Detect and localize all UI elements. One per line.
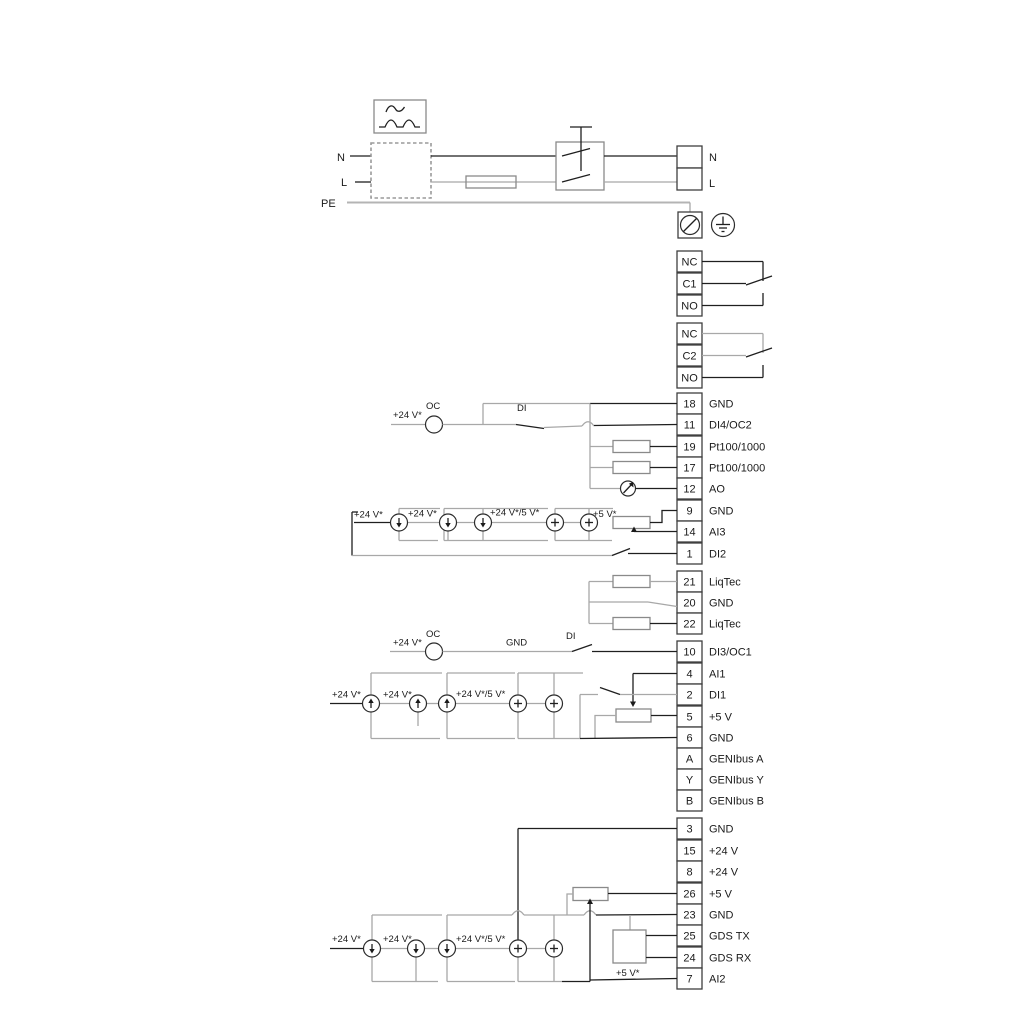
terminal-label: GDS TX xyxy=(709,931,750,943)
current-source-down-icon xyxy=(475,514,492,531)
pt100-ao-circuit xyxy=(590,404,677,497)
relay-1-contact xyxy=(702,262,772,306)
terminal-label: +24 V xyxy=(709,867,739,879)
voltage-source-plus-icon xyxy=(581,514,598,531)
open-collector-icon xyxy=(426,416,443,433)
terminal-label: GND xyxy=(709,910,734,922)
terminal-number: NC xyxy=(682,257,698,269)
current-source-up-icon xyxy=(363,695,380,712)
label-5v: +5 V* xyxy=(616,968,640,979)
terminal-label: GND xyxy=(709,824,734,836)
terminal-label: GENIbus B xyxy=(709,796,764,808)
label-oc: OC xyxy=(426,401,440,412)
terminal-label: AI3 xyxy=(709,527,726,539)
terminal-label: AO xyxy=(709,484,725,496)
wire-pot-left xyxy=(595,716,616,739)
terminal-number: Y xyxy=(686,775,694,787)
current-source-down-icon xyxy=(440,514,457,531)
terminal-number: 12 xyxy=(683,484,695,496)
label-24v: +24 V* xyxy=(383,690,412,701)
terminal-label: GENIbus Y xyxy=(709,775,764,787)
terminal-number: 22 xyxy=(683,619,695,631)
terminal-number: 8 xyxy=(686,867,692,879)
open-collector-icon xyxy=(426,643,443,660)
terminal-number: 4 xyxy=(686,669,692,681)
liqtec-circuit xyxy=(589,576,677,630)
label-24v: +24 V* xyxy=(393,410,422,421)
terminal-label: GENIbus A xyxy=(709,754,764,766)
terminal-box-l xyxy=(677,168,702,190)
label-24v-5v: +24 V*/5 V* xyxy=(490,508,540,519)
pt100-sensor-1 xyxy=(613,441,650,453)
terminal-number: 7 xyxy=(686,974,692,986)
terminal-label: +5 V xyxy=(709,889,733,901)
terminal-number: 26 xyxy=(683,889,695,901)
label-24v: +24 V* xyxy=(332,690,361,701)
pe-terminal xyxy=(678,212,702,238)
terminal-number: NO xyxy=(681,373,698,385)
terminal-number: 2 xyxy=(686,690,692,702)
liqtec-sensor-2 xyxy=(613,618,650,630)
terminal-number: C1 xyxy=(682,279,696,291)
terminal-label: AI1 xyxy=(709,669,726,681)
io-group-1-terminals: 18 11 19 17 12 9 14 1 GND DI4/OC2 Pt100/… xyxy=(677,393,765,564)
wiring-diagram: N L PE N L xyxy=(0,0,1024,1024)
potentiometer xyxy=(613,517,650,529)
wiring-diagram-svg: N L PE N L xyxy=(0,0,1024,1024)
terminal-label: AI2 xyxy=(709,974,726,986)
label-24v: +24 V* xyxy=(332,934,361,945)
liqtec-sensor-1 xyxy=(613,576,650,588)
label-24v: +24 V* xyxy=(393,638,422,649)
current-source-up-icon xyxy=(439,695,456,712)
label-oc: OC xyxy=(426,629,440,640)
source-row-ai2: +24 V* +24 V* +24 V*/5 V* xyxy=(330,829,677,982)
terminal-number: 19 xyxy=(683,442,695,454)
terminal-number: 15 xyxy=(683,846,695,858)
terminal-label: DI2 xyxy=(709,549,726,561)
terminal-number: 3 xyxy=(686,824,692,836)
terminal-label: +24 V xyxy=(709,846,739,858)
voltage-source-plus-icon xyxy=(547,514,564,531)
terminal-number: 17 xyxy=(683,463,695,475)
voltage-source-plus-icon xyxy=(510,695,527,712)
terminal-number: 25 xyxy=(683,931,695,943)
terminal-box-n xyxy=(677,146,702,168)
current-source-down-icon xyxy=(364,940,381,957)
terminal-number: 6 xyxy=(686,733,692,745)
terminal-number: A xyxy=(686,754,694,766)
label-24v: +24 V* xyxy=(354,510,383,521)
label-n-right: N xyxy=(709,152,717,164)
terminal-number: 18 xyxy=(683,399,695,411)
terminal-label: LiqTec xyxy=(709,619,741,631)
terminal-number: NC xyxy=(682,329,698,341)
terminal-number: 9 xyxy=(686,506,692,518)
potentiometer xyxy=(573,888,608,901)
liqtec-terminals: 21 20 22 LiqTec GND LiqTec xyxy=(677,571,741,634)
label-di: DI xyxy=(517,403,527,414)
relay-2-contact xyxy=(702,334,772,378)
io-group-3-terminals: 3 15 8 26 23 25 24 7 GND +24 V +24 V +5 … xyxy=(677,818,752,989)
label-24v: +24 V* xyxy=(408,509,437,520)
label-l-right: L xyxy=(709,178,715,190)
voltage-source-plus-icon xyxy=(510,940,527,957)
terminal-number: B xyxy=(686,796,693,808)
terminal-label: GND xyxy=(709,733,734,745)
terminal-number: 14 xyxy=(683,527,695,539)
label-24v-5v: +24 V*/5 V* xyxy=(456,934,506,945)
mains-waveform-icon xyxy=(374,100,426,133)
label-24v: +24 V* xyxy=(383,934,412,945)
wire-pot-left xyxy=(567,894,573,915)
voltage-source-plus-icon xyxy=(546,695,563,712)
terminal-label: Pt100/1000 xyxy=(709,442,765,454)
terminal-number: NO xyxy=(681,301,698,313)
di1-switch xyxy=(600,688,620,695)
current-source-down-icon xyxy=(408,940,425,957)
terminal-label: DI3/OC1 xyxy=(709,647,752,659)
terminal-label: DI1 xyxy=(709,690,726,702)
terminal-number: 23 xyxy=(683,910,695,922)
source-row-ai3: +24 V* +24 V* +24 V*/5 V* +5 V* xyxy=(352,508,677,556)
di3-oc1-circuit: +24 V* OC GND DI xyxy=(390,629,677,660)
di2-switch xyxy=(612,549,630,556)
terminal-label: DI4/OC2 xyxy=(709,420,752,432)
terminal-number: 11 xyxy=(684,420,695,432)
di-switch xyxy=(516,425,544,429)
label-n-left: N xyxy=(337,152,345,164)
filter-box xyxy=(371,143,431,198)
di3-switch xyxy=(572,645,592,652)
relay-1: NC C1 NO xyxy=(677,251,772,316)
terminal-label: GND xyxy=(709,506,734,518)
di4-oc2-circuit: +24 V* OC DI xyxy=(391,401,677,433)
current-source-up-icon xyxy=(410,695,427,712)
io-group-2-terminals: 10 4 2 5 6 A Y B DI3/OC1 AI1 DI1 +5 V GN… xyxy=(677,641,764,811)
mains-switch xyxy=(556,127,604,190)
terminal-label: GDS RX xyxy=(709,953,752,965)
terminal-number: 24 xyxy=(683,953,695,965)
source-row-ai1: +24 V* +24 V* +24 V*/5 V* xyxy=(330,673,677,739)
label-gnd-wire: GND xyxy=(506,638,527,649)
pt100-sensor-2 xyxy=(613,462,650,474)
analog-output-meter-icon xyxy=(621,481,636,496)
relay-2: NC C2 NO xyxy=(677,323,772,388)
terminal-number: 5 xyxy=(686,712,692,724)
label-di: DI xyxy=(566,631,576,642)
terminal-number: 20 xyxy=(683,598,695,610)
potentiometer xyxy=(616,709,651,722)
terminal-number: C2 xyxy=(682,351,696,363)
label-pe-left: PE xyxy=(321,198,336,210)
terminal-label: +5 V xyxy=(709,712,733,724)
label-l-left: L xyxy=(341,177,347,189)
wire-pot-to-gnd xyxy=(650,511,677,523)
terminal-label: Pt100/1000 xyxy=(709,463,765,475)
wire-hop xyxy=(582,422,594,426)
earth-ground-icon xyxy=(712,214,735,237)
current-source-down-icon xyxy=(391,514,408,531)
gds-sensor xyxy=(613,930,646,963)
terminal-label: LiqTec xyxy=(709,577,741,589)
wiper-arrow-icon xyxy=(630,702,636,708)
current-source-down-icon xyxy=(439,940,456,957)
terminal-number: 1 xyxy=(686,549,692,561)
voltage-source-plus-icon xyxy=(546,940,563,957)
terminal-label: GND xyxy=(709,598,734,610)
terminal-label: GND xyxy=(709,399,734,411)
power-section: N L PE N L xyxy=(321,100,735,238)
terminal-number: 10 xyxy=(683,647,695,659)
label-24v-5v: +24 V*/5 V* xyxy=(456,689,506,700)
terminal-number: 21 xyxy=(683,577,695,589)
